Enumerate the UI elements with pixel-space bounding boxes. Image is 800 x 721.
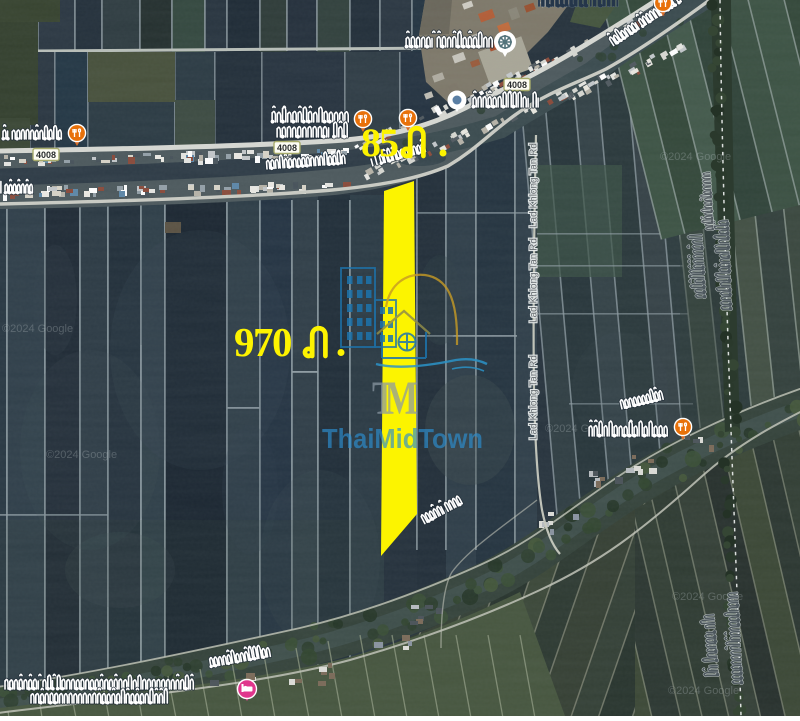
svg-text:©2024 Google: ©2024 Google — [46, 449, 117, 461]
svg-text:©2024 Google: ©2024 Google — [2, 323, 73, 335]
svg-text:©2024 Google: ©2024 Google — [660, 151, 731, 163]
svg-text:ThaiMidTown: ThaiMidTown — [322, 423, 483, 454]
svg-text:4008: 4008 — [507, 80, 527, 90]
svg-text:Lad Khlong Tan Rd: Lad Khlong Tan Rd — [529, 238, 540, 323]
svg-text:4008: 4008 — [36, 150, 56, 160]
svg-text:©2024 Google: ©2024 Google — [668, 685, 739, 697]
svg-text:M: M — [385, 372, 419, 425]
svg-text:4008: 4008 — [277, 143, 297, 153]
svg-text:85: 85 — [361, 120, 398, 165]
svg-text:970: 970 — [234, 319, 291, 365]
svg-text:Lad Khlong Tan Rd: Lad Khlong Tan Rd — [529, 355, 540, 440]
svg-text:Lad Khlong Tan Rd: Lad Khlong Tan Rd — [529, 143, 540, 228]
